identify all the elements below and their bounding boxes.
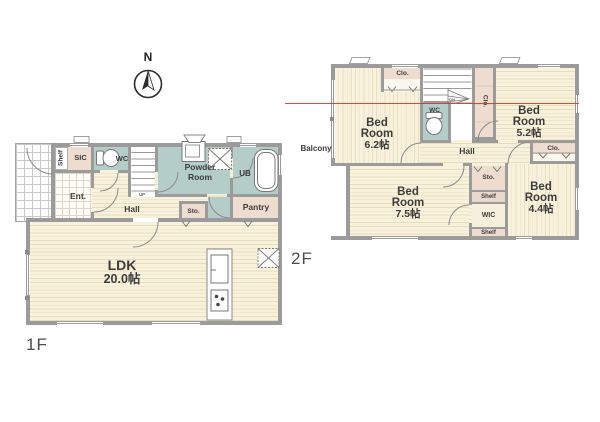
f1-door-gap	[133, 218, 158, 222]
f2-window	[392, 65, 418, 68]
f2-window	[538, 65, 560, 68]
f2-hall-label: Hall	[449, 146, 485, 156]
f2-shelf-upper-label: Shelf	[474, 193, 503, 202]
f2-landing	[451, 104, 472, 140]
compass-icon	[130, 66, 166, 102]
f2-closet-top-label: Clo.	[388, 69, 417, 78]
f2-wall	[331, 236, 579, 240]
f1-wall	[179, 201, 208, 204]
f2-window	[372, 237, 418, 240]
f1-wall	[230, 194, 282, 197]
f2-wall	[335, 163, 443, 166]
f1-window	[240, 144, 256, 147]
f1-wall	[91, 212, 94, 218]
f1-window	[70, 144, 88, 147]
f2-window	[516, 237, 532, 240]
f2-wall	[421, 140, 451, 143]
f1-ub-label: UB	[234, 169, 256, 179]
room-size: 4.4帖	[528, 204, 553, 215]
f2-bedroom-44-label: Bed Room 4.4帖	[519, 181, 563, 215]
f2-void	[331, 166, 346, 236]
f2-balcony-label: Balcony	[297, 145, 335, 154]
f2-wall	[530, 161, 575, 164]
f2-window-end	[330, 117, 334, 121]
f2-wall	[469, 166, 472, 205]
f1-powder-room-label: Powder Room	[178, 163, 222, 182]
f2-closet-strip-label: Clo.	[480, 84, 490, 119]
f1-pantry-label: Pantry	[236, 202, 276, 212]
f1-wall	[155, 194, 207, 197]
f1-window-end	[25, 296, 29, 300]
f1-wall	[230, 147, 233, 158]
floor-plan-page: N	[0, 0, 600, 422]
f1-hall-label: Hall	[114, 204, 150, 214]
f2-bedroom-52-label: Bed Room 5.2帖	[507, 105, 551, 139]
f1-sic-label: SIC	[66, 153, 95, 163]
f2-wall	[472, 202, 505, 204]
f1-window-end	[25, 250, 29, 254]
room-name: Bed Room	[519, 182, 563, 204]
f2-wall	[448, 104, 451, 140]
f1-ldk-label: LDK 20.0帖	[82, 258, 162, 286]
f1-wall	[155, 147, 158, 172]
compass-north-label: N	[130, 50, 166, 64]
f1-ldk-name: LDK	[108, 258, 137, 273]
f1-porch	[15, 143, 53, 222]
room-size: 5.2帖	[516, 128, 541, 139]
f2-wall	[575, 64, 579, 240]
f1-floor-label: 1F	[26, 335, 48, 355]
f2-closet-right-label: Clo.	[539, 145, 568, 154]
f1-window	[57, 322, 103, 325]
f2-floor-label: 2F	[291, 249, 313, 269]
f2-shelf-lower-label: Shelf	[474, 229, 503, 237]
room-name: Bed Room	[355, 118, 399, 140]
f1-entrance-label: Ent.	[60, 191, 96, 201]
room-name: Bed Room	[386, 187, 430, 209]
f1-wall	[230, 178, 233, 218]
f2-window	[576, 188, 579, 210]
f2-wc-label: WC	[421, 106, 448, 115]
f2-wall	[518, 140, 579, 143]
room-size: 7.5帖	[395, 209, 420, 220]
room-name: Bed Room	[507, 106, 551, 128]
f1-stairs-up-label: UP	[130, 192, 154, 198]
f2-closet-top-shelf	[384, 79, 421, 92]
f1-wall	[51, 143, 55, 222]
f1-powder-ext	[208, 197, 230, 218]
f2-wall	[346, 166, 350, 236]
f2-wall	[469, 223, 472, 236]
f1-window	[279, 155, 282, 175]
f1-wc-label: WC	[108, 154, 136, 164]
f2-bedroom-62-label: Bed Room 6.2帖	[355, 117, 399, 151]
f2-storage-label: Sto.	[477, 173, 500, 182]
f2-wic-label: WIC	[477, 211, 500, 220]
vent-icon	[184, 135, 205, 143]
f1-storage-label: Sto.	[182, 207, 205, 216]
f2-wall	[381, 64, 384, 92]
scan-red-line	[285, 103, 579, 105]
f2-wall	[505, 163, 508, 236]
f1-window	[152, 322, 200, 325]
f1-ldk-size: 20.0帖	[104, 273, 141, 286]
f1-shelf-label: Shelf	[57, 141, 67, 176]
f1-wall	[205, 201, 208, 218]
f2-wall	[472, 140, 498, 143]
room-size: 6.2帖	[364, 140, 389, 151]
f1-window	[27, 255, 30, 295]
f2-bedroom-75-label: Bed Room 7.5帖	[386, 186, 430, 220]
